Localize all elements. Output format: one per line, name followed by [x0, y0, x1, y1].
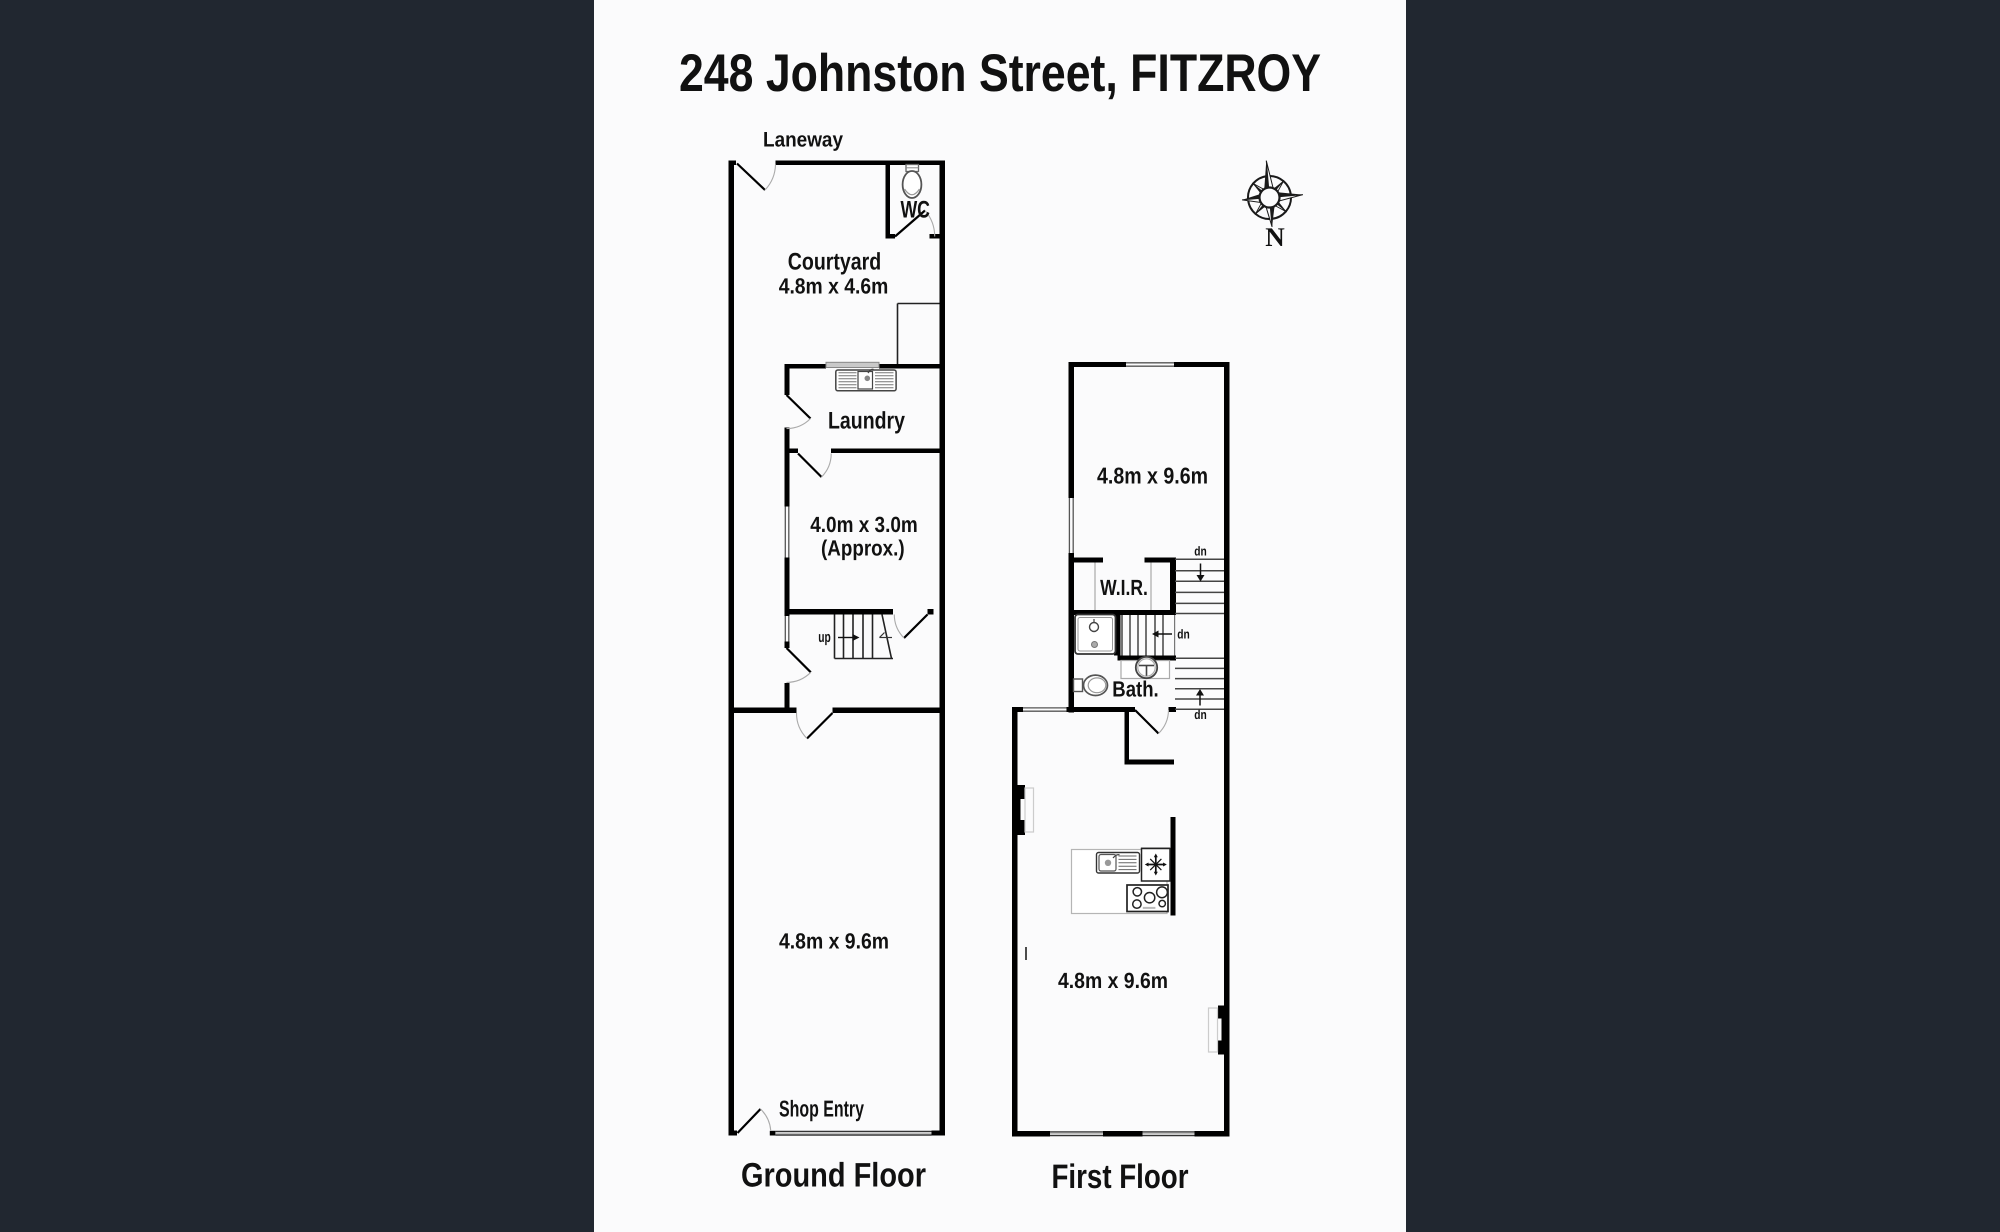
svg-text:Courtyard: Courtyard — [788, 249, 882, 276]
svg-text:4.8m x 9.6m: 4.8m x 9.6m — [1058, 968, 1168, 993]
svg-text:248 Johnston Street, FITZROY: 248 Johnston Street, FITZROY — [679, 44, 1321, 103]
svg-text:dn: dn — [1177, 627, 1190, 642]
svg-text:W.I.R.: W.I.R. — [1100, 575, 1148, 600]
svg-text:4.8m x 4.6m: 4.8m x 4.6m — [779, 274, 889, 299]
svg-text:(Approx.): (Approx.) — [821, 536, 905, 561]
svg-text:Laundry: Laundry — [828, 408, 906, 435]
svg-text:dn: dn — [1194, 544, 1207, 559]
svg-text:N: N — [1265, 222, 1285, 252]
svg-text:Bath.: Bath. — [1112, 677, 1158, 702]
svg-text:4.0m x 3.0m: 4.0m x 3.0m — [810, 512, 918, 537]
svg-text:WC: WC — [900, 197, 930, 224]
svg-text:Shop Entry: Shop Entry — [779, 1096, 864, 1122]
svg-text:4.8m x 9.6m: 4.8m x 9.6m — [779, 929, 889, 954]
svg-text:First Floor: First Floor — [1052, 1158, 1189, 1196]
svg-text:4.8m x 9.6m: 4.8m x 9.6m — [1097, 463, 1208, 489]
svg-text:Ground Floor: Ground Floor — [741, 1157, 926, 1195]
svg-text:up: up — [818, 629, 831, 646]
svg-text:Laneway: Laneway — [763, 129, 843, 152]
svg-text:dn: dn — [1194, 707, 1207, 722]
